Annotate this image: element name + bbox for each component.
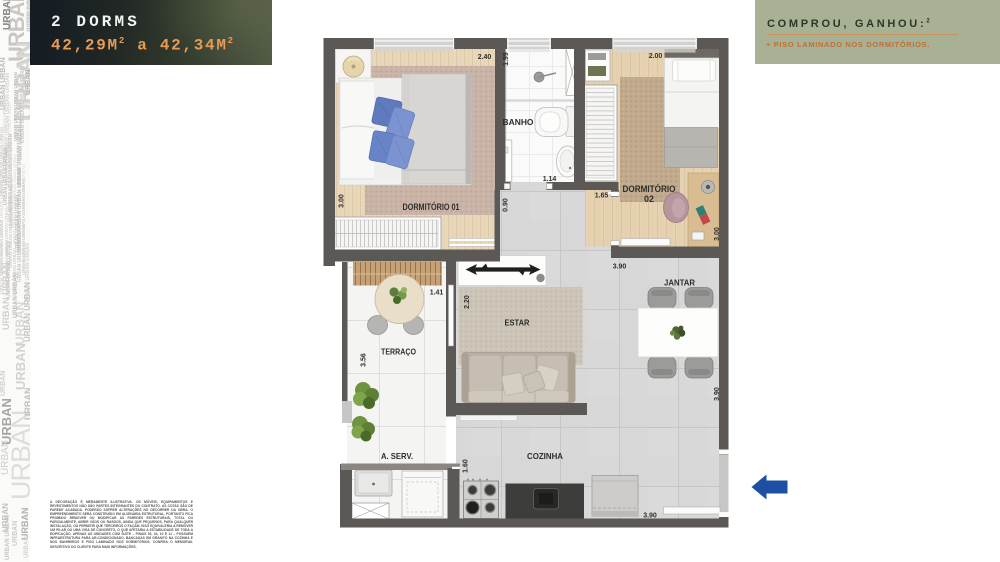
- svg-text:0.90: 0.90: [502, 198, 509, 212]
- svg-text:A. SERV.: A. SERV.: [381, 451, 413, 461]
- svg-text:DORMITÓRIO 01: DORMITÓRIO 01: [403, 201, 460, 212]
- svg-text:1.65: 1.65: [595, 193, 609, 200]
- svg-text:02: 02: [644, 194, 654, 204]
- svg-text:BANHO: BANHO: [503, 117, 534, 127]
- svg-text:3.90: 3.90: [714, 387, 721, 401]
- svg-text:1.99: 1.99: [503, 52, 510, 66]
- svg-text:2.00: 2.00: [649, 53, 663, 60]
- svg-text:1.41: 1.41: [430, 290, 444, 297]
- svg-text:3.00: 3.00: [338, 194, 345, 208]
- svg-text:DORMITÓRIO: DORMITÓRIO: [623, 183, 676, 194]
- svg-text:3.90: 3.90: [643, 513, 657, 520]
- svg-text:TERRAÇO: TERRAÇO: [381, 347, 416, 357]
- svg-text:3.90: 3.90: [613, 264, 627, 271]
- svg-text:3.00: 3.00: [714, 227, 721, 241]
- svg-text:COZINHA: COZINHA: [527, 451, 563, 461]
- svg-text:JANTAR: JANTAR: [664, 278, 695, 288]
- svg-text:2.40: 2.40: [478, 54, 492, 61]
- svg-text:1.14: 1.14: [543, 176, 557, 183]
- svg-text:2.20: 2.20: [464, 295, 471, 309]
- svg-text:ESTAR: ESTAR: [505, 318, 530, 328]
- svg-text:1.60: 1.60: [462, 459, 469, 473]
- svg-text:3.56: 3.56: [360, 353, 367, 367]
